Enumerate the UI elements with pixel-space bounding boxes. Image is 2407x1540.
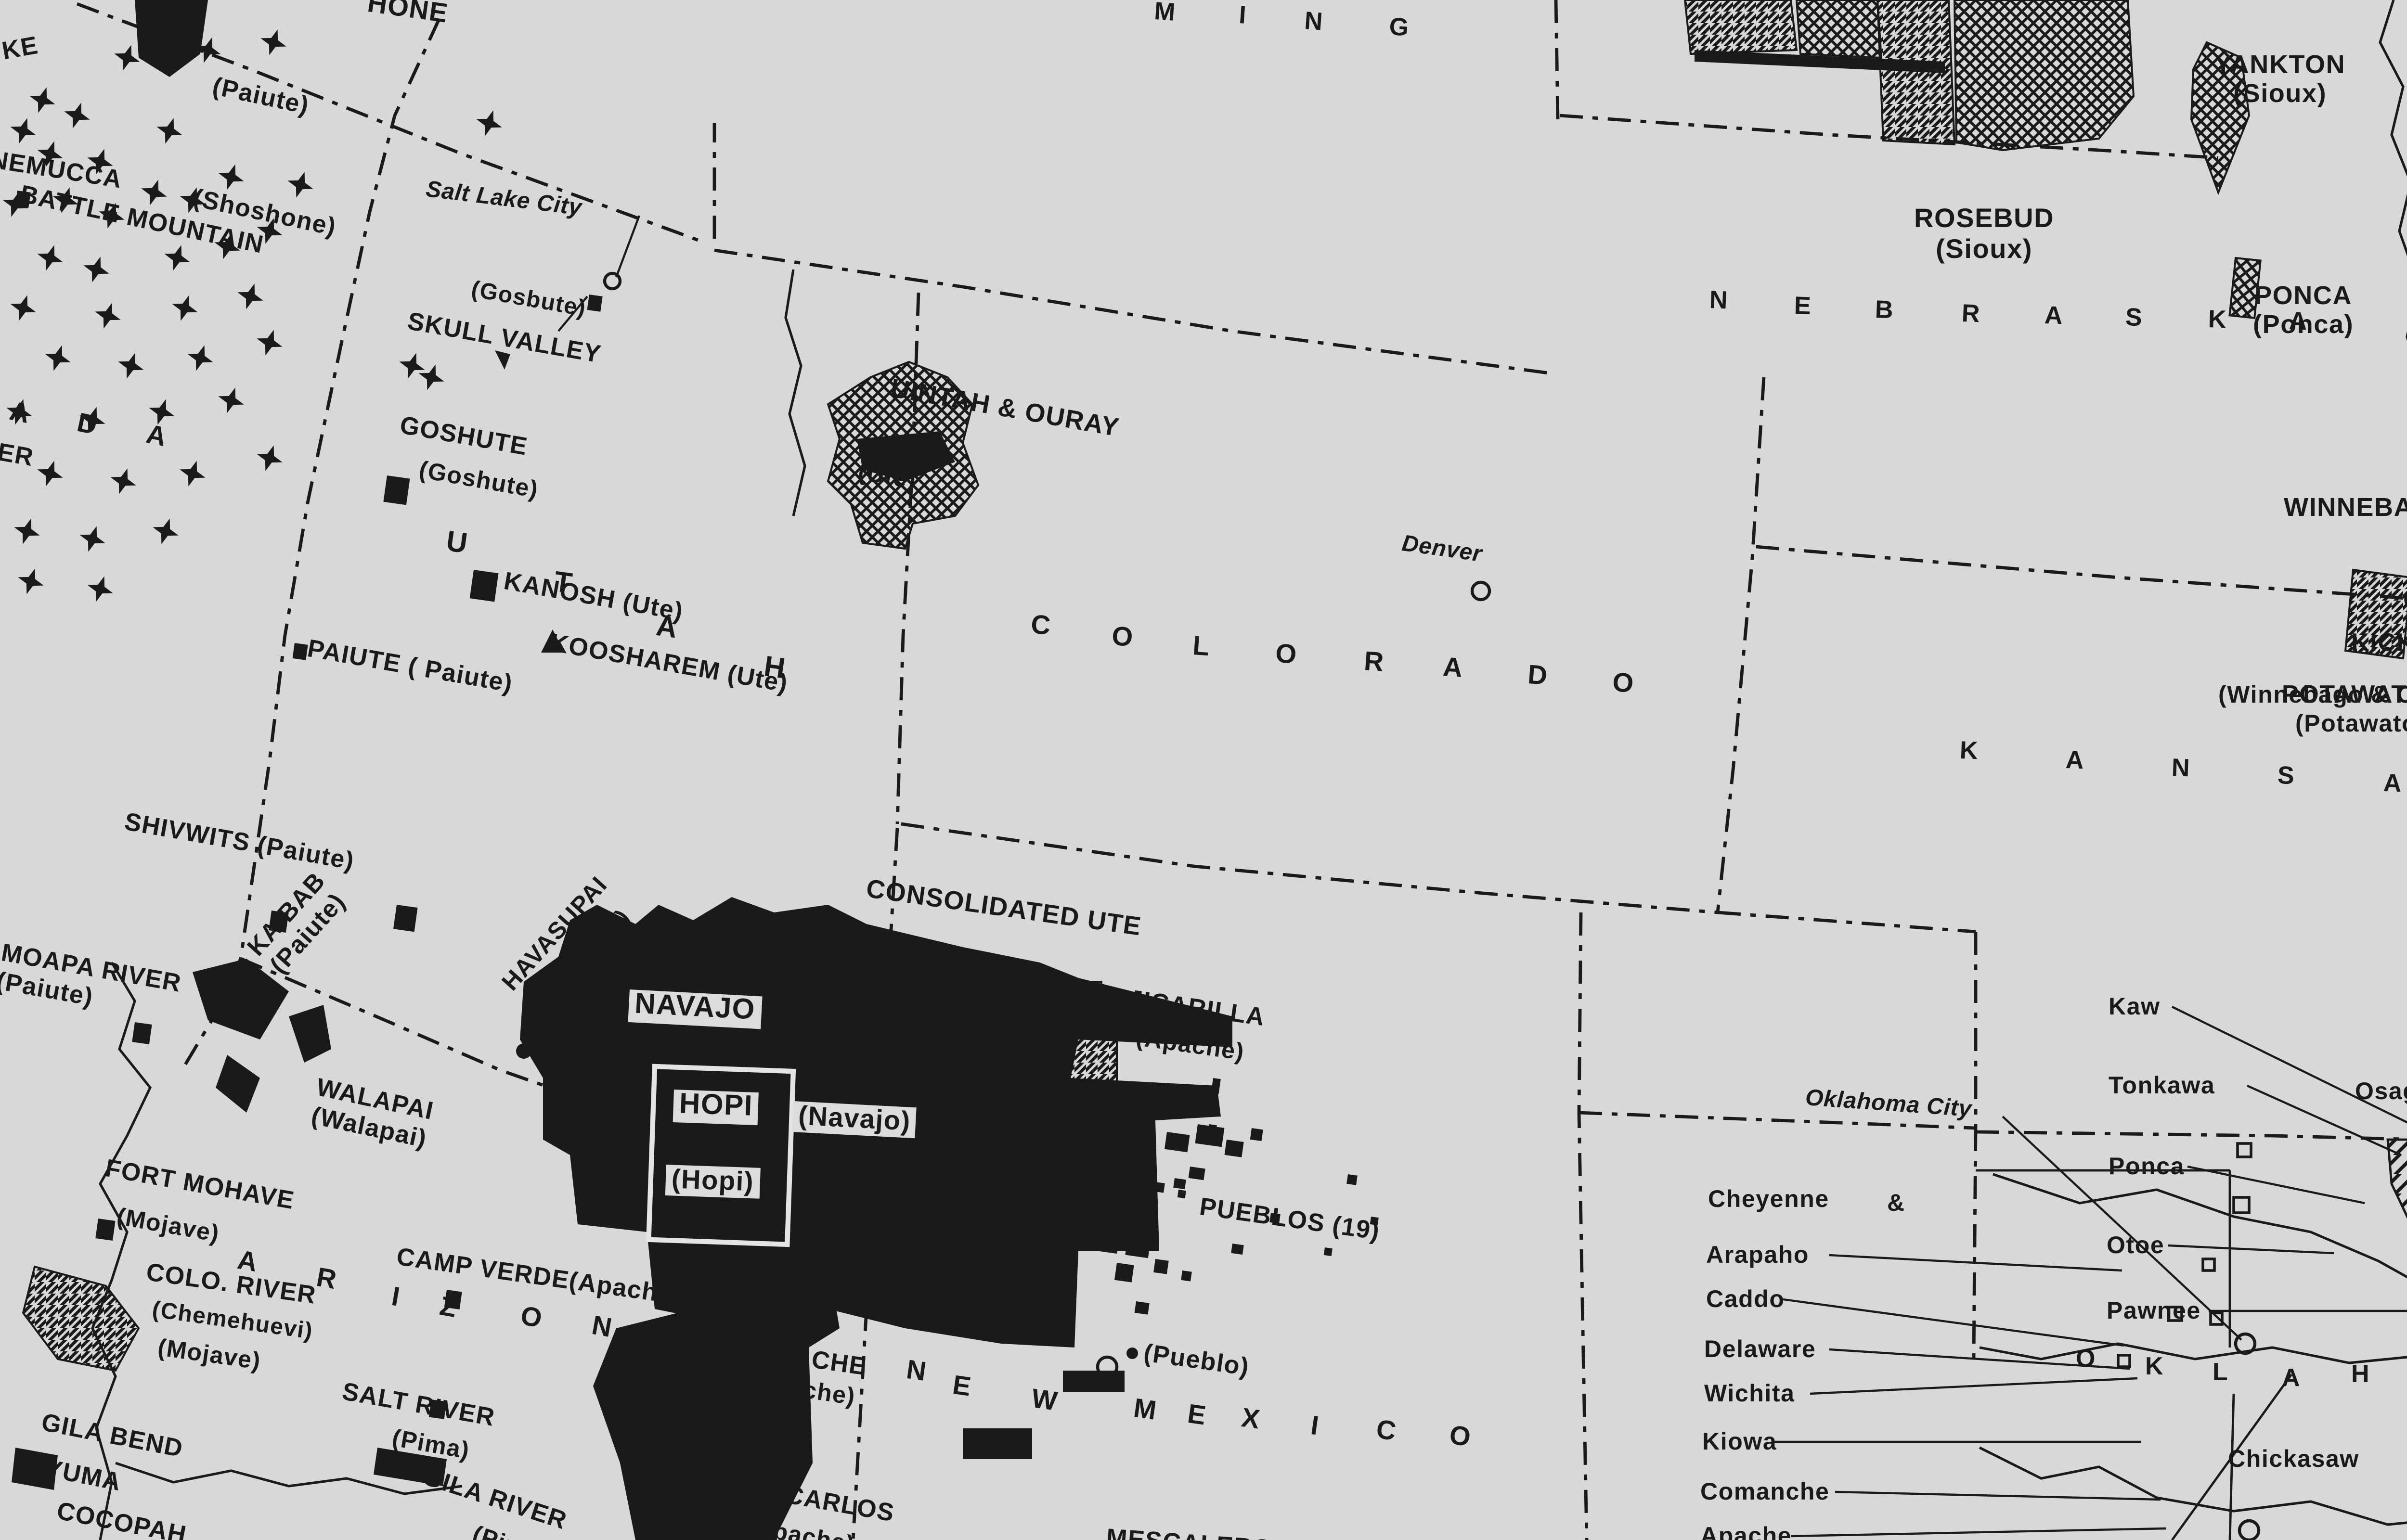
label-pueblo: (Pueblo) bbox=[1142, 1340, 1251, 1382]
label-ponca-ok: Ponca bbox=[2109, 1153, 2185, 1180]
state-letter-colorado-5: A bbox=[1442, 651, 1464, 683]
state-letter-new-mexico-5: X bbox=[1240, 1401, 1262, 1435]
state-letter-kansas-4: A bbox=[2383, 768, 2402, 797]
label-denver: Denver bbox=[1400, 531, 1484, 568]
state-letter-kansas-3: S bbox=[2277, 760, 2295, 790]
label-cheyenne: Cheyenne bbox=[1708, 1186, 1829, 1213]
label-hopi: HOPI bbox=[673, 1090, 759, 1125]
label-salt-lake-city: Salt Lake City bbox=[424, 177, 583, 222]
label-rosebud: ROSEBUD (Sioux) bbox=[1914, 204, 2054, 264]
label-lake-partial: KE bbox=[0, 32, 40, 66]
state-letter-nebraska-3: R bbox=[1961, 298, 1980, 328]
label-arapaho: Arapaho bbox=[1706, 1242, 1809, 1269]
state-letter-nebraska-4: A bbox=[2044, 300, 2063, 330]
label-kaw: Kaw bbox=[2109, 993, 2161, 1020]
state-letter-arizona-4: O bbox=[518, 1299, 544, 1334]
state-letter-oklahoma-3: A bbox=[2282, 1363, 2300, 1392]
state-letter-new-mexico-4: E bbox=[1186, 1398, 1208, 1431]
label-potawatomi: POTAWATOMI bbox=[2282, 681, 2407, 709]
state-letter-new-mexico-1: E bbox=[951, 1369, 973, 1402]
label-mescalero: MESCALERO bbox=[1105, 1525, 1274, 1540]
label-ponca-ne: PONCA (Ponca) bbox=[2253, 281, 2354, 339]
label-winnebago-2: OMAHA bbox=[2403, 585, 2407, 614]
state-letter-nebraska-0: N bbox=[1709, 285, 1728, 314]
state-letter-new-mexico-2: W bbox=[1030, 1382, 1059, 1416]
label-pawnee: Pawnee bbox=[2107, 1297, 2201, 1324]
state-letter-arizona-3: Z bbox=[438, 1290, 459, 1323]
label-chickasaw: Chickasaw bbox=[2228, 1446, 2359, 1473]
state-letter-new-mexico-3: M bbox=[1132, 1392, 1158, 1425]
state-letter-nebraska-6: K bbox=[2208, 304, 2227, 334]
state-letter-wyoming-partial-1: I bbox=[1238, 0, 1247, 29]
label-shivwits: SHIVWITS (Paiute) bbox=[122, 808, 356, 876]
state-letter-colorado-1: O bbox=[1111, 620, 1134, 652]
label-paiute-ut: PAIUTE ( Paiute) bbox=[305, 635, 515, 699]
state-letter-oklahoma-4: H bbox=[2351, 1359, 2369, 1388]
state-letter-wyoming-partial-0: M bbox=[1153, 0, 1176, 26]
label-nv-paiute: (Paiute) bbox=[210, 73, 311, 121]
state-letter-nevada-partial-2: A bbox=[144, 418, 169, 452]
state-letter-nevada-partial-0: A bbox=[7, 395, 33, 429]
reservation-map: ADAUTAHCOLORADOMINGARIZONANEWMEXICONEBRA… bbox=[0, 0, 2407, 1540]
label-walapai: WALAPAI (Walapai) bbox=[308, 1074, 436, 1154]
state-letter-nebraska-5: S bbox=[2125, 302, 2143, 332]
label-united-pueblos-2: PUEBLOS (19) bbox=[1198, 1193, 1382, 1246]
label-kiowa: Kiowa bbox=[1702, 1428, 1777, 1455]
state-letter-new-mexico-6: I bbox=[1309, 1409, 1320, 1441]
state-letter-colorado-3: O bbox=[1275, 637, 1298, 669]
label-caddo: Caddo bbox=[1706, 1286, 1785, 1313]
state-letter-nevada-partial-1: D bbox=[75, 406, 100, 440]
state-letter-wyoming-partial-3: G bbox=[1388, 12, 1410, 42]
label-navajo-sub: (Navajo) bbox=[792, 1101, 918, 1138]
state-letter-kansas-2: N bbox=[2171, 753, 2190, 782]
label-apache-ok: Apache bbox=[1700, 1523, 1792, 1540]
label-comanche: Comanche bbox=[1700, 1478, 1829, 1505]
label-otoe: Otoe bbox=[2107, 1232, 2164, 1259]
state-letter-oklahoma-0: O bbox=[2076, 1344, 2096, 1373]
state-letter-arizona-1: R bbox=[314, 1261, 339, 1295]
state-letter-colorado-7: O bbox=[1612, 666, 1635, 698]
label-kaibab: KAIBAB (Paiute) bbox=[243, 868, 352, 981]
state-letter-oklahoma-2: L bbox=[2213, 1357, 2228, 1386]
label-kanosh: KANOSH (Ute) bbox=[502, 568, 686, 627]
label-cocopah: COCOPAH bbox=[54, 1498, 189, 1540]
state-letter-arizona-5: N bbox=[590, 1309, 614, 1343]
label-yuma: YUMA bbox=[43, 1455, 124, 1498]
state-letter-new-mexico-7: C bbox=[1374, 1413, 1398, 1446]
state-letter-colorado-0: C bbox=[1030, 608, 1052, 641]
label-jicarilla-sub: (Apache) bbox=[1134, 1024, 1246, 1066]
label-kickapoo: KICKAPOO bbox=[2351, 629, 2407, 657]
state-letter-arizona-2: I bbox=[389, 1280, 402, 1312]
state-letter-wyoming-partial-2: N bbox=[1304, 6, 1324, 36]
label-cheyenne-amp: & bbox=[1887, 1190, 1905, 1217]
state-letter-nebraska-1: E bbox=[1794, 291, 1812, 320]
label-consolidated-ute: CONSOLIDATED UTE bbox=[865, 874, 1143, 941]
state-letter-utah-0: U bbox=[444, 526, 469, 561]
label-navajo: NAVAJO bbox=[628, 989, 762, 1028]
label-wichita: Wichita bbox=[1704, 1380, 1795, 1407]
label-osage: Osage bbox=[2355, 1078, 2407, 1105]
state-letter-kansas-0: K bbox=[1959, 735, 1979, 765]
state-letter-colorado-2: L bbox=[1192, 629, 1211, 661]
label-consolidated-ute-sub: (Ute) bbox=[994, 1005, 1058, 1041]
label-gila-river: GILA RIVER bbox=[419, 1463, 570, 1536]
label-river-partial: ER bbox=[0, 439, 36, 473]
label-goshute-sub: (Goshute) bbox=[417, 456, 540, 504]
label-uintah-sub: (Ute) bbox=[856, 458, 919, 495]
label-salt-river-sub: (Pima) bbox=[390, 1424, 472, 1464]
state-letter-oklahoma-1: K bbox=[2145, 1351, 2163, 1380]
state-letter-colorado-4: R bbox=[1363, 645, 1385, 677]
label-yankton: YANKTON (Sioux) bbox=[2214, 50, 2345, 108]
label-zuni: (Zuni) bbox=[872, 1190, 950, 1228]
label-fort-mohave-sub: (Mojave) bbox=[115, 1203, 221, 1248]
label-oklahoma-city: Oklahoma City bbox=[1804, 1086, 1972, 1123]
label-gosbute: (Gosbute) bbox=[469, 277, 588, 323]
label-camp-verde: CAMP VERDE(Apache) bbox=[395, 1244, 683, 1311]
state-letter-kansas-1: A bbox=[2065, 745, 2084, 774]
state-letter-new-mexico-0: N bbox=[905, 1353, 928, 1386]
map-labels-layer: ADAUTAHCOLORADOMINGARIZONANEWMEXICONEBRA… bbox=[0, 0, 2407, 1540]
label-colo-river-sub2: (Mojave) bbox=[156, 1334, 262, 1375]
label-salt-river: SALT RIVER bbox=[340, 1378, 497, 1433]
state-letter-nebraska-2: B bbox=[1875, 295, 1894, 324]
label-potawatomi-sub: (Potawatomi) bbox=[2295, 710, 2407, 737]
label-moapa-river: MOAPA RIVER (Paiute) bbox=[0, 939, 183, 1026]
state-letter-colorado-6: D bbox=[1527, 658, 1549, 691]
label-united-pueblos-1: UNITED bbox=[1044, 1174, 1144, 1216]
label-uintah-ouray: UINTAH & OURAY bbox=[889, 373, 1122, 442]
label-delaware: Delaware bbox=[1704, 1336, 1816, 1363]
label-winnebago-1: WINNEBAGO & bbox=[2284, 493, 2407, 522]
state-letter-new-mexico-8: O bbox=[1448, 1419, 1473, 1452]
label-hopi-sub: (Hopi) bbox=[665, 1165, 760, 1198]
label-goshute: GOSHUTE bbox=[398, 412, 530, 462]
label-shoshone-partial: HONE bbox=[365, 0, 450, 29]
label-tonkawa: Tonkawa bbox=[2109, 1072, 2215, 1099]
